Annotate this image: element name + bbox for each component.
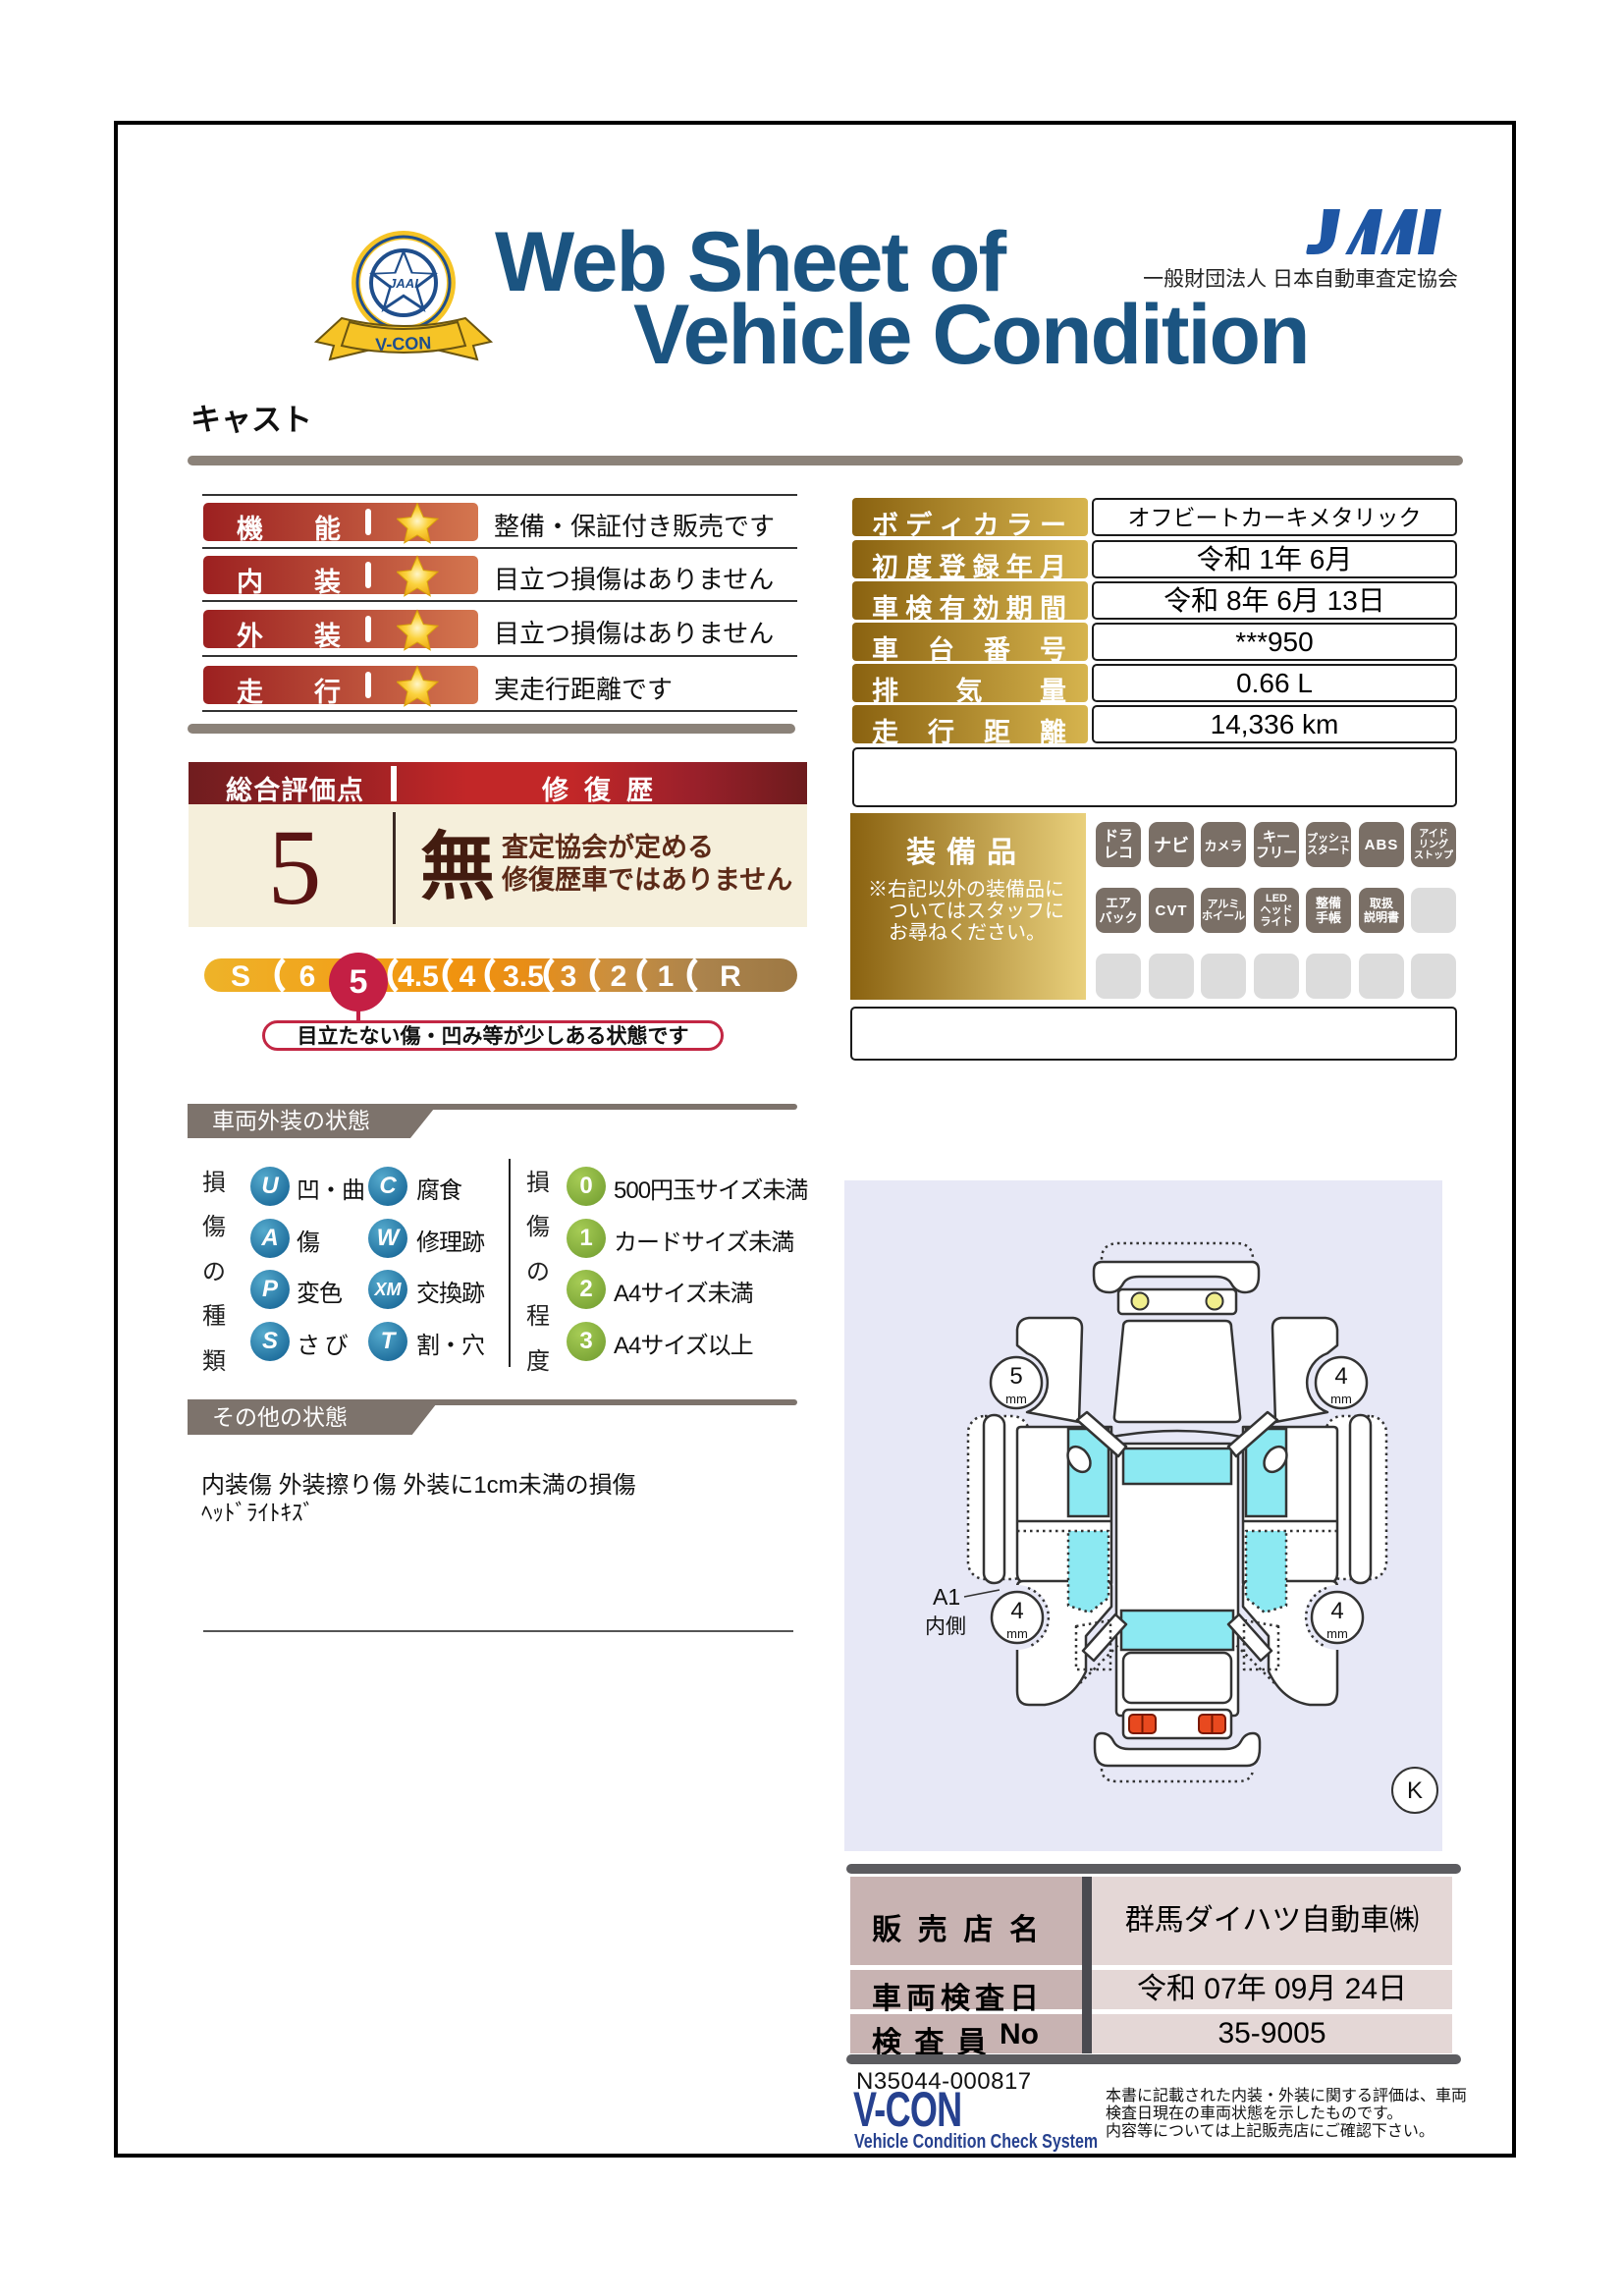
svg-text:3.5: 3.5 — [503, 960, 544, 993]
svg-text:2: 2 — [611, 960, 627, 993]
svg-text:mm: mm — [1005, 1392, 1027, 1406]
svg-text:4.5: 4.5 — [398, 960, 439, 993]
svg-text:4: 4 — [1010, 1598, 1023, 1624]
svg-text:mm: mm — [1326, 1626, 1348, 1641]
svg-text:5: 5 — [1009, 1363, 1022, 1390]
svg-text:R: R — [720, 960, 741, 993]
svg-text:4: 4 — [460, 960, 476, 993]
svg-text:6: 6 — [299, 960, 316, 993]
svg-text:内側: 内側 — [925, 1615, 966, 1638]
svg-text:mm: mm — [1006, 1626, 1028, 1641]
svg-text:A1: A1 — [933, 1584, 960, 1610]
svg-text:1: 1 — [658, 960, 675, 993]
svg-text:5: 5 — [350, 963, 368, 1001]
svg-text:JAAI: JAAI — [389, 276, 418, 291]
svg-text:S: S — [231, 960, 250, 993]
svg-text:3: 3 — [561, 960, 577, 993]
svg-text:K: K — [1407, 1777, 1423, 1804]
svg-text:4: 4 — [1330, 1598, 1343, 1624]
svg-text:mm: mm — [1330, 1392, 1352, 1406]
svg-text:4: 4 — [1334, 1363, 1347, 1390]
svg-text:V-CON: V-CON — [375, 333, 432, 355]
